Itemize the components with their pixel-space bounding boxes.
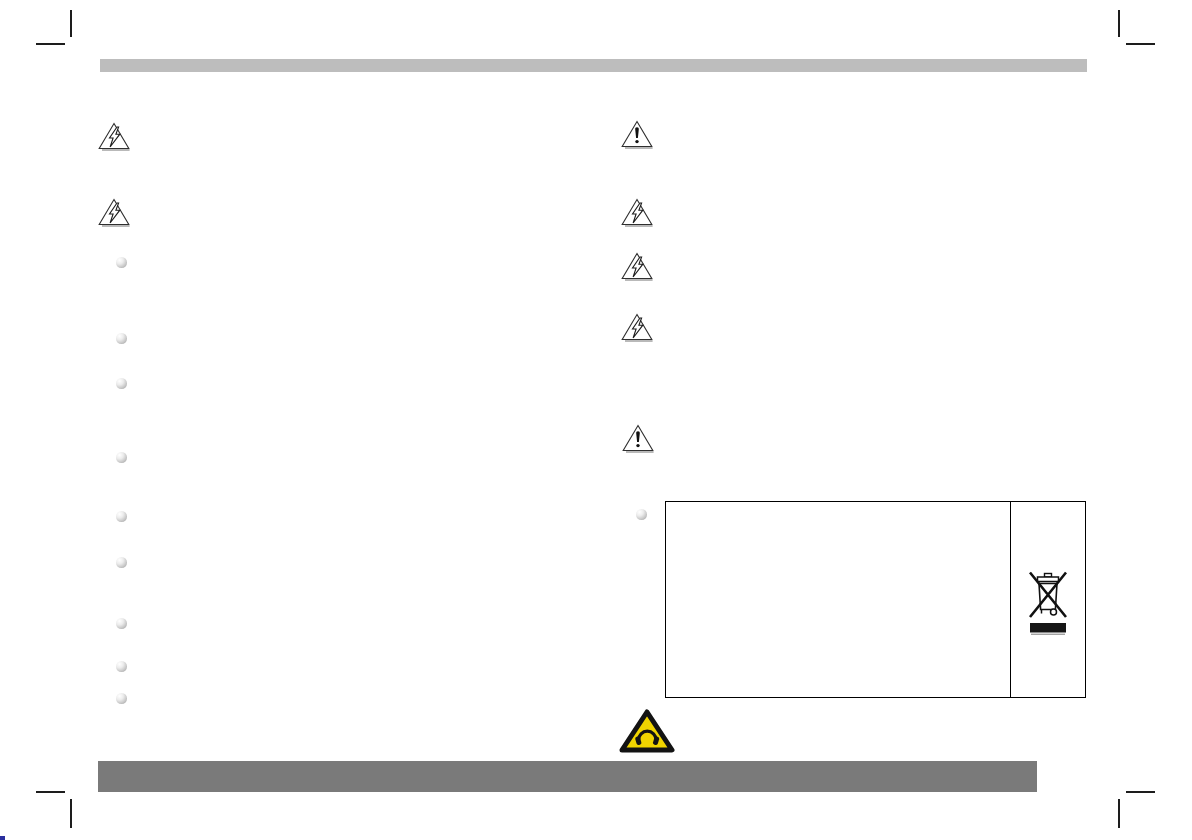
crop-mark-top-right-vertical [1118, 10, 1120, 37]
bullet-point [116, 333, 127, 344]
weee-notice-table [665, 501, 1086, 698]
bullet-point [116, 257, 127, 268]
weee-crossed-out-wheeled-bin-icon [1023, 559, 1073, 641]
weee-symbol-cell [1011, 502, 1085, 697]
high-voltage-warning-icon [621, 312, 653, 342]
high-voltage-warning-icon [98, 121, 130, 151]
bullet-point [116, 378, 127, 389]
bullet-point [116, 618, 127, 629]
general-warning-icon [622, 423, 654, 453]
bullet-point [116, 557, 127, 568]
hearing-damage-warning-icon [619, 708, 675, 754]
header-bar [100, 59, 1087, 72]
manual-safety-page [0, 0, 1192, 840]
weee-notice-text-cell [666, 502, 1011, 697]
bullet-point [116, 452, 127, 463]
bullet-point [116, 693, 127, 704]
footer-bar [98, 761, 1037, 792]
bullet-point [636, 509, 647, 520]
print-registration-mark [0, 836, 5, 840]
general-warning-icon [621, 119, 653, 149]
crop-mark-top-left-horizontal [36, 43, 65, 45]
crop-mark-bottom-right-vertical [1118, 799, 1120, 828]
high-voltage-warning-icon [98, 197, 130, 227]
high-voltage-warning-icon [621, 197, 653, 227]
crop-mark-bottom-left-horizontal [36, 791, 65, 793]
crop-mark-bottom-left-vertical [70, 799, 72, 828]
crop-mark-top-left-vertical [70, 10, 72, 37]
high-voltage-warning-icon [621, 251, 653, 281]
crop-mark-bottom-right-horizontal [1126, 791, 1155, 793]
crop-mark-top-right-horizontal [1126, 43, 1155, 45]
bullet-point [116, 511, 127, 522]
bullet-point [116, 661, 127, 672]
